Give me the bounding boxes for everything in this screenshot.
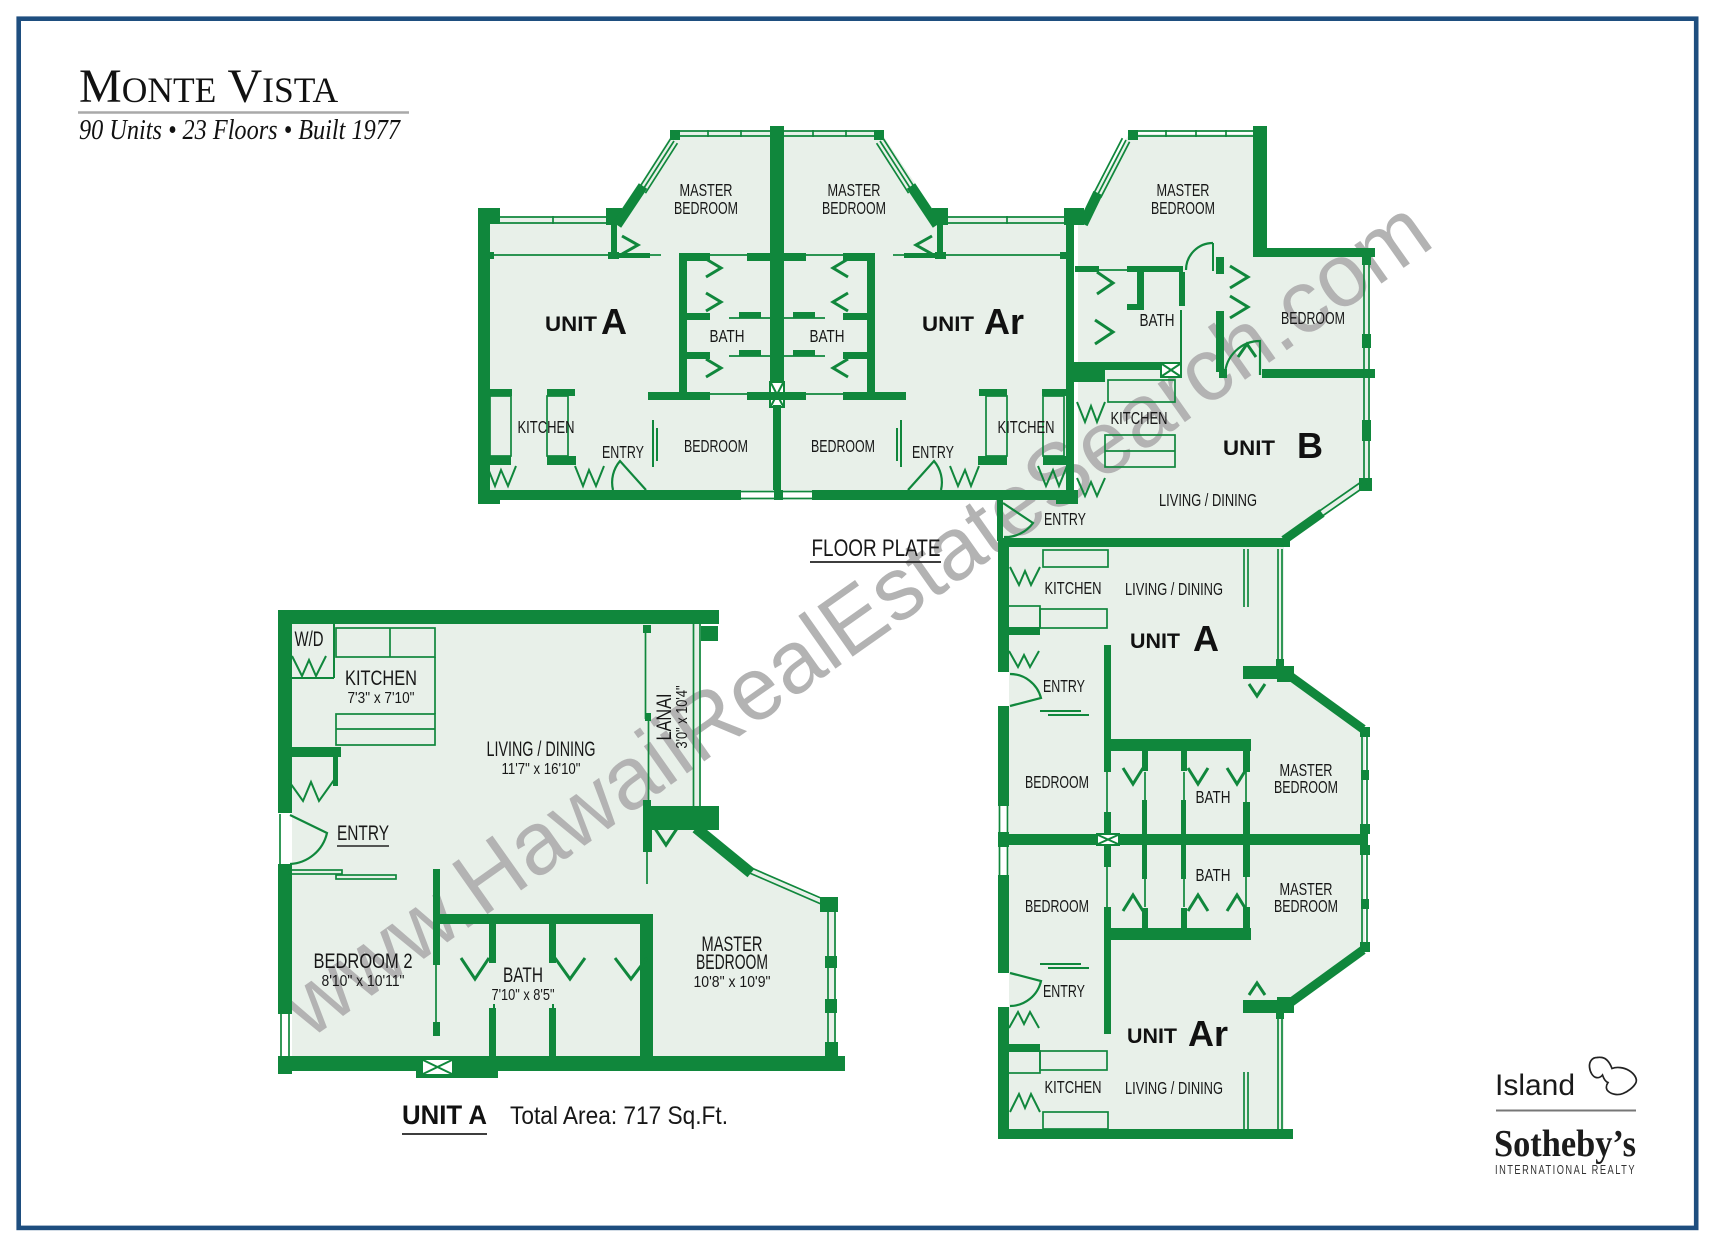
svg-text:UNIT: UNIT — [1223, 437, 1275, 460]
svg-text:8'10" x 10'11": 8'10" x 10'11" — [322, 973, 405, 990]
svg-text:KITCHEN: KITCHEN — [1045, 578, 1102, 598]
svg-text:7'3" x 7'10": 7'3" x 7'10" — [348, 690, 415, 707]
svg-text:MASTER: MASTER — [1157, 180, 1210, 200]
svg-text:BEDROOM: BEDROOM — [1274, 777, 1338, 797]
svg-text:KITCHEN: KITCHEN — [1111, 408, 1168, 428]
svg-text:BEDROOM: BEDROOM — [1274, 896, 1338, 916]
svg-text:3'0" x 10'4": 3'0" x 10'4" — [674, 686, 691, 749]
svg-text:BEDROOM: BEDROOM — [674, 198, 738, 218]
svg-text:BATH: BATH — [810, 326, 845, 346]
svg-text:KITCHEN: KITCHEN — [345, 667, 417, 690]
svg-text:A: A — [1193, 618, 1219, 659]
svg-text:Island: Island — [1495, 1069, 1575, 1102]
svg-text:BATH: BATH — [1196, 865, 1231, 885]
svg-text:W/D: W/D — [295, 628, 324, 651]
svg-text:90 Units • 23 Floors • Built 1: 90 Units • 23 Floors • Built 1977 — [79, 114, 401, 146]
svg-text:INTERNATIONAL REALTY: INTERNATIONAL REALTY — [1495, 1163, 1636, 1177]
svg-text:10'8" x 10'9": 10'8" x 10'9" — [694, 974, 771, 991]
svg-text:ENTRY: ENTRY — [1043, 981, 1085, 1001]
svg-text:BEDROOM: BEDROOM — [822, 198, 886, 218]
svg-text:BEDROOM: BEDROOM — [1025, 772, 1089, 792]
svg-text:BEDROOM: BEDROOM — [811, 436, 875, 456]
svg-text:BEDROOM: BEDROOM — [684, 436, 748, 456]
svg-text:ENTRY: ENTRY — [1043, 676, 1085, 696]
svg-text:FLOOR PLATE: FLOOR PLATE — [812, 535, 941, 562]
svg-text:Ar: Ar — [1188, 1013, 1228, 1054]
svg-text:KITCHEN: KITCHEN — [998, 417, 1055, 437]
svg-text:ENTRY: ENTRY — [337, 822, 389, 845]
svg-text:KITCHEN: KITCHEN — [518, 417, 575, 437]
svg-text:UNIT: UNIT — [1130, 630, 1180, 653]
svg-text:UNIT: UNIT — [1127, 1025, 1177, 1048]
svg-text:LIVING / DINING: LIVING / DINING — [1125, 1078, 1223, 1098]
svg-text:LIVING / DINING: LIVING / DINING — [1159, 490, 1257, 510]
svg-text:LIVING / DINING: LIVING / DINING — [1125, 579, 1223, 599]
svg-text:UNIT A: UNIT A — [402, 1100, 487, 1130]
svg-text:ENTRY: ENTRY — [1044, 509, 1086, 529]
svg-text:B: B — [1297, 425, 1323, 466]
svg-text:BEDROOM: BEDROOM — [1151, 198, 1215, 218]
svg-text:LIVING / DINING: LIVING / DINING — [487, 738, 596, 761]
svg-text:BATH: BATH — [710, 326, 745, 346]
svg-text:11'7" x 16'10": 11'7" x 16'10" — [502, 761, 581, 778]
svg-text:BATH: BATH — [503, 964, 543, 987]
svg-text:UNIT: UNIT — [922, 313, 974, 336]
svg-text:A: A — [601, 301, 627, 342]
svg-text:BEDROOM: BEDROOM — [1025, 896, 1089, 916]
svg-text:BEDROOM: BEDROOM — [696, 951, 768, 974]
svg-text:ENTRY: ENTRY — [602, 442, 644, 462]
svg-text:Ar: Ar — [984, 301, 1024, 342]
svg-text:UNIT: UNIT — [545, 313, 597, 336]
svg-text:BATH: BATH — [1140, 310, 1175, 330]
svg-text:Total Area: 717 Sq.Ft.: Total Area: 717 Sq.Ft. — [510, 1102, 728, 1130]
svg-text:BATH: BATH — [1196, 787, 1231, 807]
svg-text:MASTER: MASTER — [680, 180, 733, 200]
svg-text:7'10" x 8'5": 7'10" x 8'5" — [492, 987, 555, 1004]
svg-text:BEDROOM 2: BEDROOM 2 — [314, 950, 413, 973]
svg-text:BEDROOM: BEDROOM — [1281, 308, 1345, 328]
svg-text:KITCHEN: KITCHEN — [1045, 1077, 1102, 1097]
svg-text:Sotheby’s: Sotheby’s — [1494, 1123, 1636, 1165]
svg-text:ENTRY: ENTRY — [912, 442, 954, 462]
svg-text:LANAI: LANAI — [653, 694, 676, 741]
svg-text:MASTER: MASTER — [828, 180, 881, 200]
